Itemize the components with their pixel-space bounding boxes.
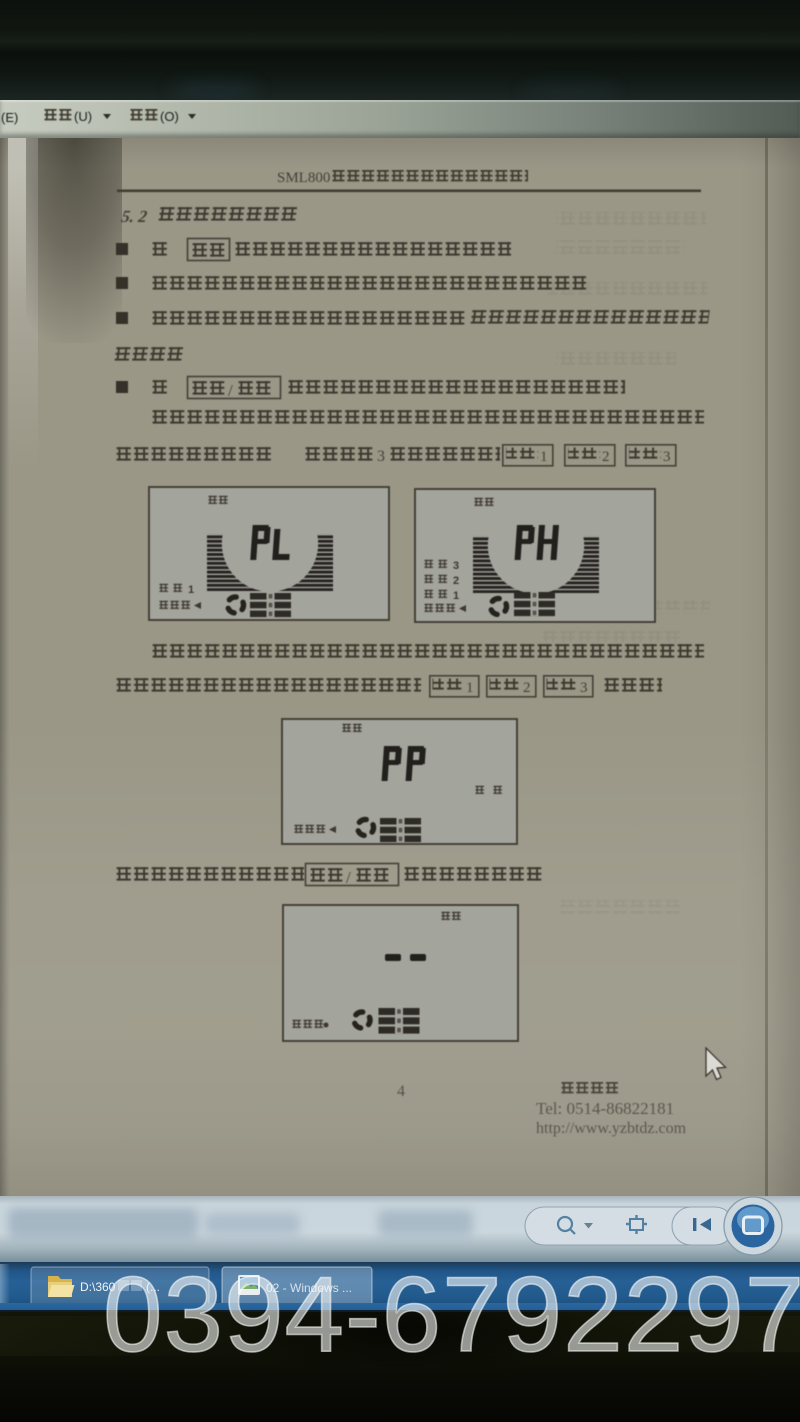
- svg-text:SML800: SML800: [277, 170, 330, 186]
- svg-text:1: 1: [540, 449, 548, 465]
- svg-text:3: 3: [377, 448, 385, 465]
- svg-text:3: 3: [580, 680, 588, 696]
- svg-text:/: /: [228, 381, 233, 400]
- svg-text:3: 3: [663, 449, 671, 465]
- svg-text:1: 1: [466, 680, 474, 696]
- svg-text:2: 2: [523, 680, 531, 696]
- svg-text:(E): (E): [1, 110, 18, 125]
- svg-text:1: 1: [188, 584, 194, 596]
- svg-text:(U): (U): [74, 109, 92, 124]
- svg-text:2: 2: [453, 575, 459, 587]
- svg-text:Tel: 0514-86822181: Tel: 0514-86822181: [536, 1099, 674, 1118]
- svg-text:/: /: [346, 868, 351, 887]
- svg-text:5. 2: 5. 2: [120, 207, 149, 226]
- svg-text:1: 1: [453, 590, 459, 602]
- svg-text:2: 2: [602, 449, 610, 465]
- svg-text:http://www.yzbtdz.com: http://www.yzbtdz.com: [536, 1120, 687, 1137]
- svg-text:4: 4: [397, 1083, 405, 1100]
- svg-text:(O): (O): [160, 109, 179, 124]
- svg-text:3: 3: [453, 560, 459, 572]
